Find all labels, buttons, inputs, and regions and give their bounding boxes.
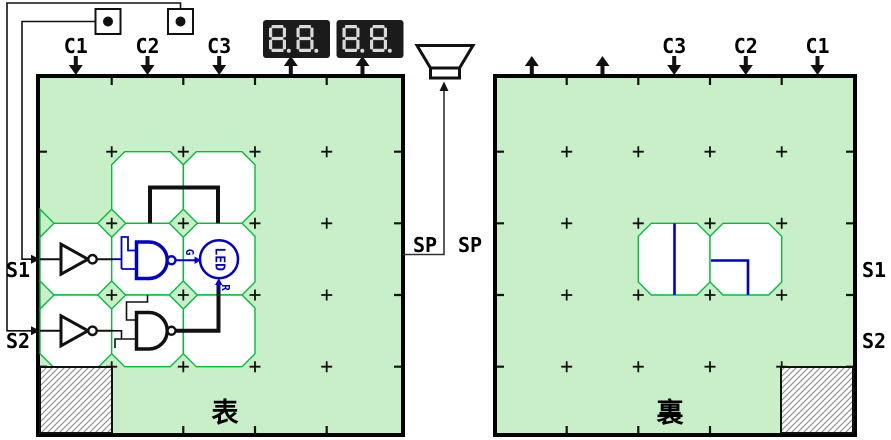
push-button-2-dot-icon bbox=[176, 17, 186, 27]
back-s2-label: S2 bbox=[862, 329, 886, 353]
front-board-title: 表 bbox=[212, 398, 239, 429]
seven-segment-display-2: 8.8. bbox=[337, 20, 404, 58]
speaker-icon bbox=[417, 46, 473, 69]
back-c1-label: C1 bbox=[805, 34, 829, 58]
led-component[interactable]: LED bbox=[200, 240, 238, 278]
not-gate-s1-bubble bbox=[88, 255, 96, 263]
back-cell-right[interactable] bbox=[710, 223, 782, 295]
display-arrows bbox=[284, 56, 370, 74]
front-c3-label: C3 bbox=[207, 34, 231, 58]
back-up-arrows bbox=[525, 56, 610, 74]
sp-arrowhead-icon bbox=[440, 82, 449, 92]
not-gate-s2-bubble bbox=[88, 327, 96, 335]
push-button-1-dot-icon bbox=[103, 17, 113, 27]
front-corner-hatch bbox=[40, 367, 112, 433]
led-label: LED bbox=[212, 247, 227, 271]
led-r-label: R bbox=[219, 284, 232, 291]
back-c-arrows bbox=[667, 56, 824, 75]
seven-segment-display-1: 8.8. bbox=[263, 20, 330, 58]
circuit-diagram: 表 裏 C1 C2 C3 bbox=[0, 0, 891, 440]
front-s2-label: S2 bbox=[6, 329, 30, 353]
speaker-base-icon bbox=[431, 68, 460, 78]
front-c-arrows bbox=[69, 56, 226, 75]
front-sp-label: SP bbox=[413, 233, 437, 257]
back-board-title: 裏 bbox=[656, 397, 685, 429]
front-c1-label: C1 bbox=[64, 34, 88, 58]
nand-gate-black-bubble bbox=[168, 327, 176, 335]
speaker-assembly bbox=[403, 46, 473, 255]
back-c2-label: C2 bbox=[734, 34, 758, 58]
front-s1-label: S1 bbox=[6, 258, 30, 282]
back-s1-label: S1 bbox=[862, 258, 886, 282]
nand-gate-blue-bubble bbox=[168, 256, 176, 264]
back-board: 裏 bbox=[495, 76, 855, 435]
front-c2-label: C2 bbox=[135, 34, 159, 58]
circuit-worksheet: 表 裏 C1 C2 C3 bbox=[0, 0, 891, 440]
led-g-label: G bbox=[183, 249, 196, 256]
back-c3-label: C3 bbox=[662, 34, 686, 58]
back-top-io: C3 C2 C1 bbox=[525, 34, 830, 75]
back-corner-hatch bbox=[781, 367, 853, 433]
back-sp-label: SP bbox=[458, 233, 482, 257]
sp-wire bbox=[403, 91, 444, 255]
